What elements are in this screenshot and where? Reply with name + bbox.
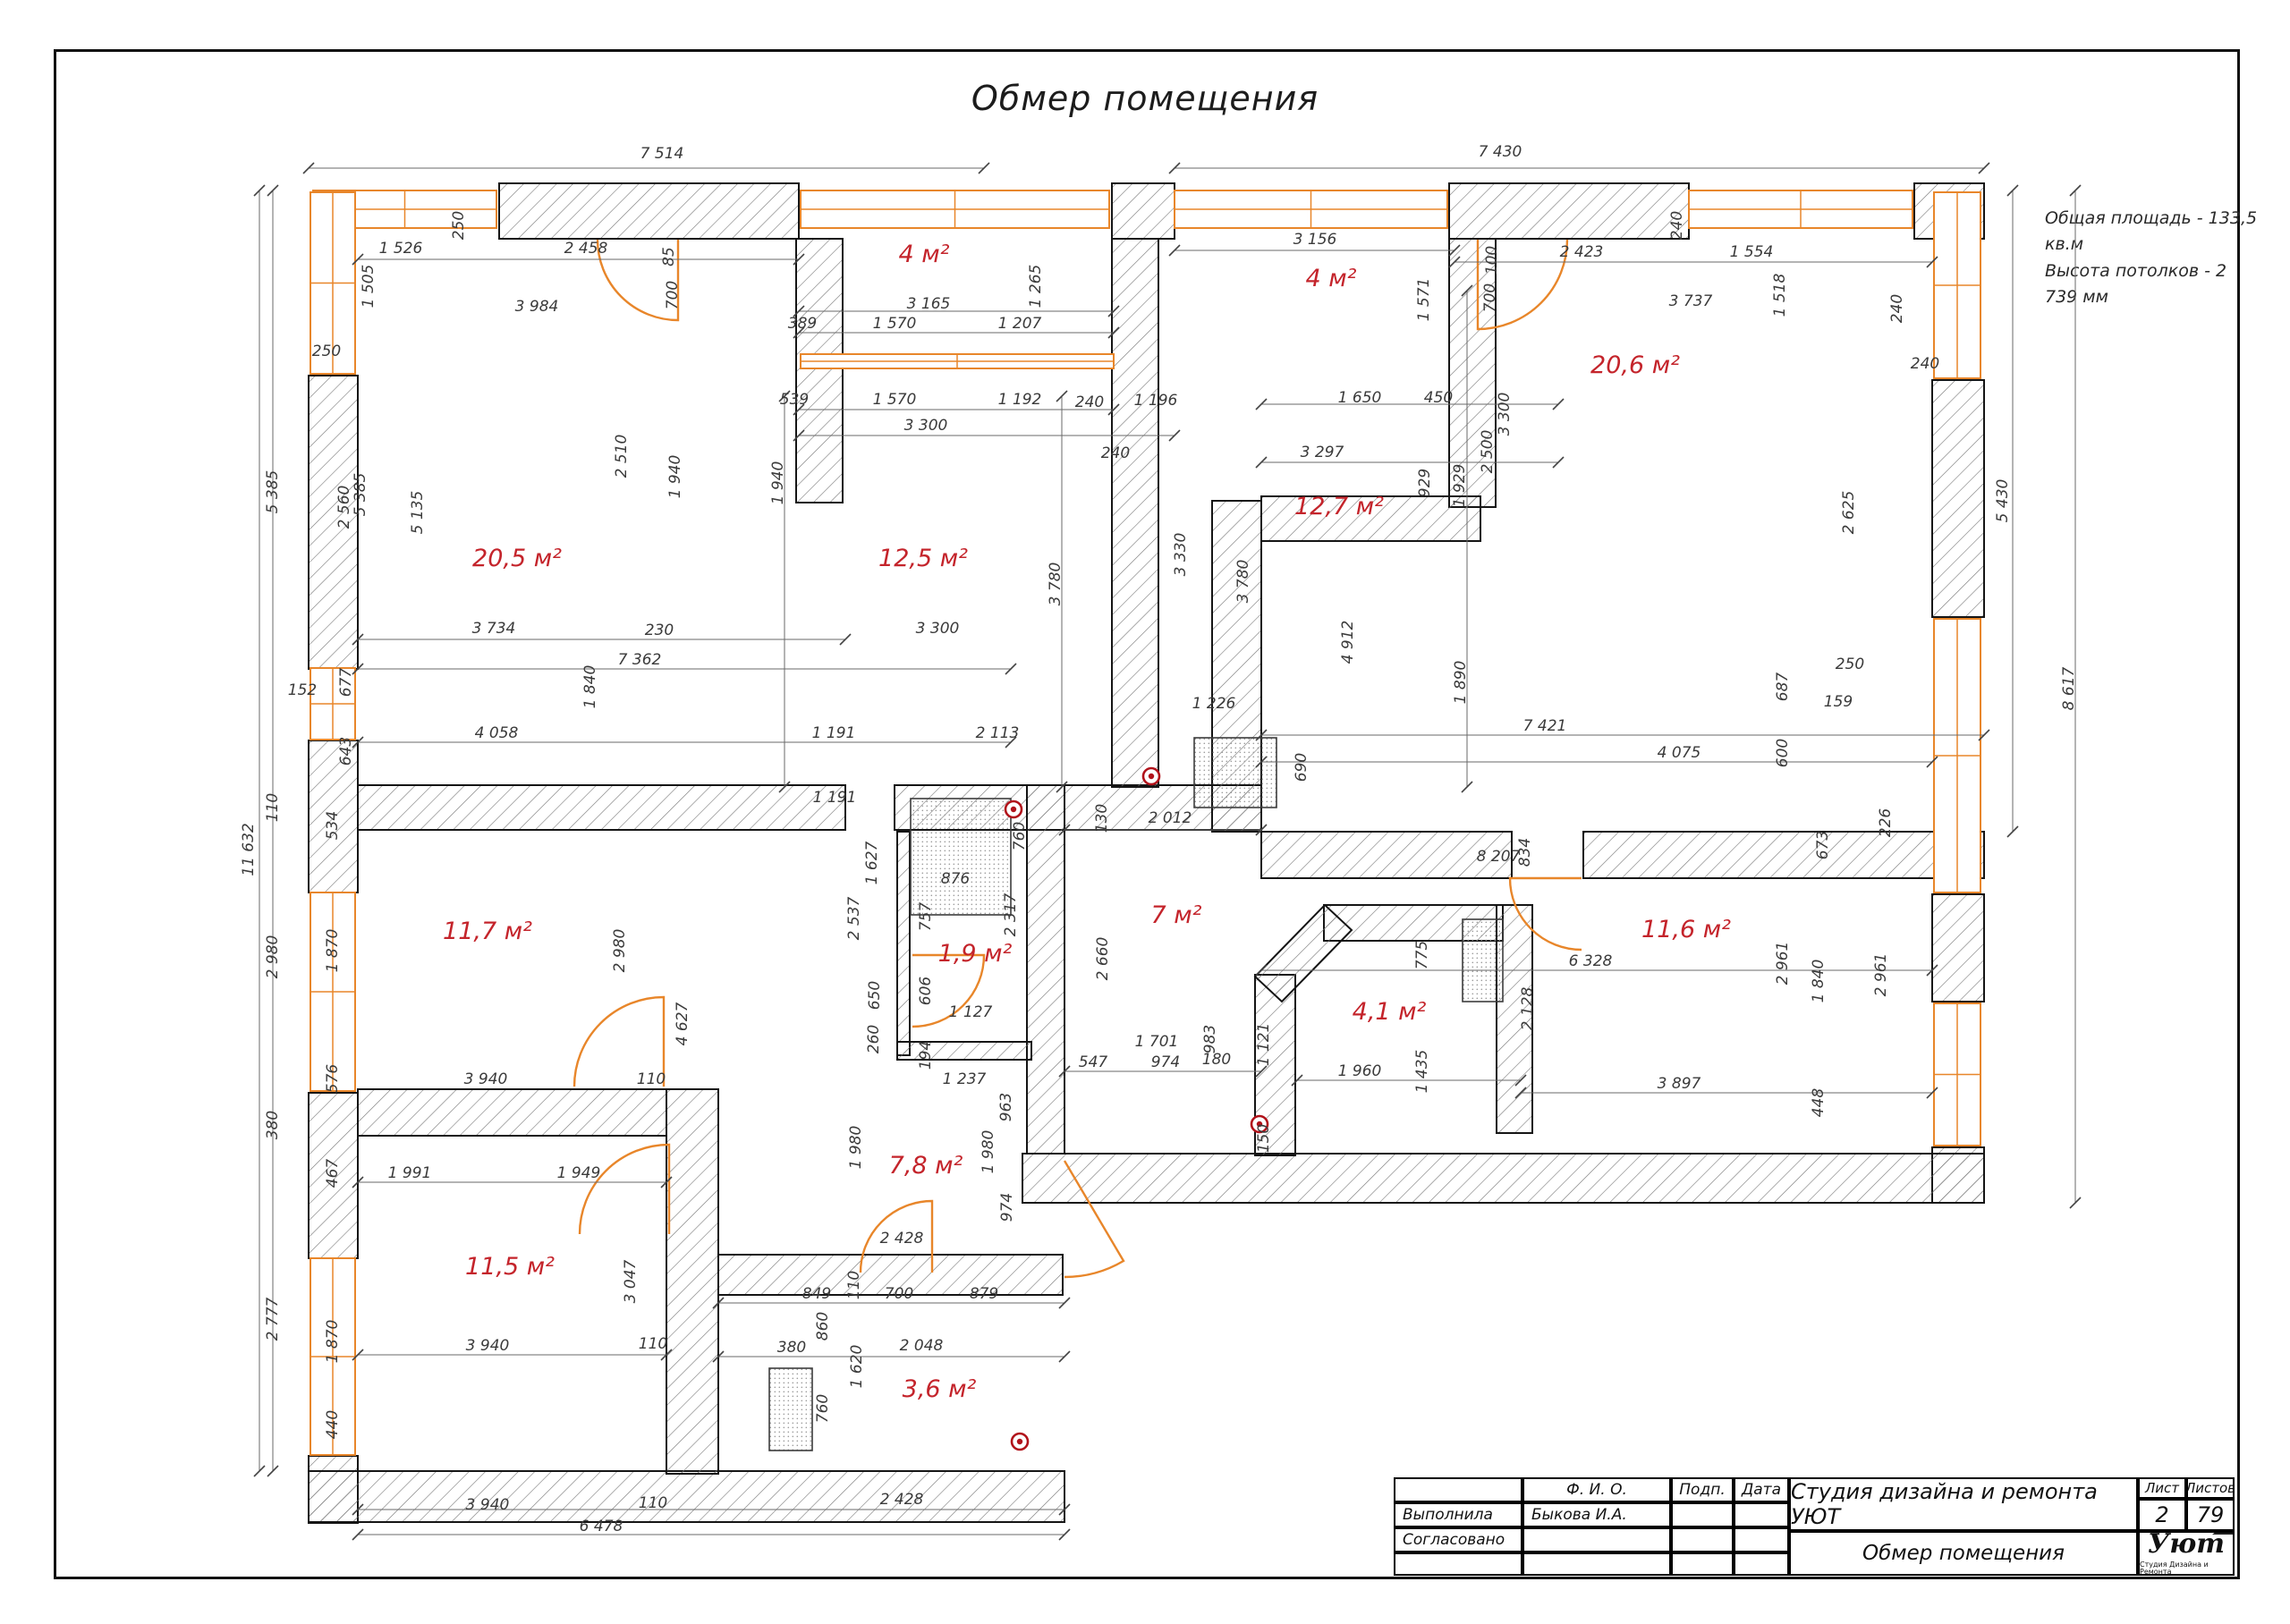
dimension-label: 1 570 (873, 315, 917, 333)
dimension-label: 467 (324, 1159, 342, 1188)
dimension-label: 1 840 (581, 665, 599, 709)
dimension-label: 547 (1079, 1053, 1108, 1071)
dimension-label: 1 207 (998, 315, 1042, 333)
dimension-label: 448 (1810, 1088, 1828, 1118)
dimension-label: 3 940 (464, 1070, 508, 1088)
room-area-label: 12,7 м² (1294, 493, 1384, 520)
dimension-label: 700 (885, 1285, 913, 1303)
dimension-label: 250 (450, 211, 468, 240)
dimension-label: 600 (1774, 739, 1792, 767)
dimension-label: 6 478 (580, 1518, 623, 1535)
dimension-label: 1 980 (980, 1130, 997, 1174)
dimension-label: 3 780 (1047, 562, 1064, 606)
dimension-label: 1 620 (848, 1345, 866, 1389)
dimension-label: 250 (312, 343, 341, 360)
dimension-label: 110 (845, 1271, 863, 1299)
dimension-label: 2 458 (564, 240, 608, 258)
dimension-label: 3 897 (1658, 1075, 1701, 1093)
dimension-label: 534 (324, 811, 342, 840)
dimension-label: 2 560 (335, 486, 353, 529)
dimension-label: 1 191 (813, 789, 857, 807)
wall-segment (1449, 183, 1689, 239)
dimension-label: 2 961 (1872, 953, 1890, 997)
titleblock-agreed-label: Согласовано (1394, 1527, 1522, 1552)
dimension-label: 2 048 (900, 1337, 944, 1355)
floor-plan: 7 5147 4305 4308 61711 6325 3851102 9803… (0, 0, 2290, 1624)
titleblock-date-header: Дата (1734, 1477, 1789, 1502)
dimension-label: 240 (1668, 211, 1686, 240)
dimension-label: 240 (1911, 355, 1939, 373)
dimension-label: 2 428 (880, 1491, 924, 1509)
dimension-label: 876 (941, 870, 971, 888)
dimension-label: 110 (639, 1335, 667, 1353)
room-area-label: 1,9 м² (938, 940, 1013, 968)
room-area-label: 4,1 м² (1353, 998, 1427, 1026)
dimension-label: 159 (1824, 693, 1853, 711)
dimension-label: 687 (1774, 672, 1792, 702)
dimension-label: 11 632 (240, 823, 258, 875)
dimension-label: 240 (1888, 294, 1906, 323)
dimension-label: 576 (324, 1064, 342, 1094)
wall-segment (309, 1471, 1064, 1522)
outlet-icon-center (1149, 774, 1154, 779)
dimension-label: 4 912 (1339, 621, 1357, 664)
walls-layer (309, 183, 1984, 1523)
titleblock-corner-cell (1394, 1477, 1522, 1502)
dimension-label: 3 984 (515, 298, 559, 316)
dimension-label: 2 510 (613, 435, 631, 478)
dimension-label: 539 (780, 391, 809, 409)
dimension-label: 7 430 (1479, 143, 1522, 161)
wall-diagonal-segment (1255, 905, 1352, 1002)
dimension-label: 7 514 (640, 145, 684, 163)
room-area-label: 4 м² (1306, 265, 1357, 292)
dimension-label: 2 537 (845, 896, 863, 940)
dimension-label: 450 (1424, 389, 1453, 407)
dimension-label: 2 980 (264, 935, 282, 979)
dimension-label: 974 (998, 1193, 1016, 1222)
fixture (1194, 738, 1276, 808)
wall-segment (1583, 832, 1984, 878)
titleblock-cell (1671, 1527, 1734, 1552)
titleblock-sign-header: Подп. (1671, 1477, 1734, 1502)
dimension-label: 3 156 (1293, 231, 1337, 249)
wall-segment (1112, 183, 1175, 239)
dimension-label: 1 435 (1413, 1050, 1431, 1094)
dimension-label: 2 428 (880, 1230, 924, 1248)
dimension-label: 1 570 (873, 391, 917, 409)
fixture (769, 1368, 812, 1451)
title-block: Выполнила Согласовано Ф. И. О. Быкова И.… (1394, 1477, 2235, 1576)
titleblock-done-label: Выполнила (1394, 1502, 1522, 1527)
wall-segment (1932, 380, 1984, 617)
room-area-label: 7,8 м² (889, 1152, 963, 1180)
titleblock-cell (1522, 1527, 1671, 1552)
dimension-label: 700 (1481, 283, 1499, 312)
dimension-label: 1 526 (379, 240, 423, 258)
titleblock-doc-title: Обмер помещения (1789, 1531, 2138, 1576)
dimension-label: 240 (1075, 393, 1104, 411)
dimension-label: 2 317 (1002, 892, 1020, 936)
wall-segment (1932, 894, 1984, 1002)
dimension-label: 760 (1011, 822, 1029, 850)
room-area-label: 12,5 м² (878, 545, 968, 572)
dimension-label: 1 554 (1730, 243, 1774, 261)
outlet-icon-center (1017, 1439, 1022, 1444)
dimension-label: 1 949 (557, 1164, 601, 1182)
room-area-label: 20,5 м² (472, 545, 562, 572)
titleblock-cell (1734, 1502, 1789, 1527)
dimension-label: 929 (1416, 469, 1434, 497)
dimension-label: 1 890 (1452, 661, 1470, 705)
dimension-label: 1 940 (666, 455, 684, 499)
dimension-label: 1 192 (998, 391, 1042, 409)
dimension-label: 2 980 (611, 929, 629, 973)
dimension-label: 860 (814, 1312, 832, 1341)
dimension-label: 250 (1836, 656, 1864, 673)
titleblock-sheet-label: Лист (2138, 1477, 2186, 1499)
dimension-label: 1 196 (1134, 392, 1178, 410)
titleblock-sheets-total: 79 (2186, 1499, 2235, 1531)
dimension-label: 1 571 (1415, 278, 1433, 322)
titleblock-cell (1734, 1552, 1789, 1576)
dimension-label: 230 (645, 622, 674, 639)
dimension-label: 1 121 (1255, 1023, 1273, 1067)
dimension-label: 5 430 (1994, 479, 2012, 523)
dimension-label: 1 627 (863, 841, 881, 884)
room-area-label: 7 м² (1151, 901, 1202, 929)
dimension-label: 2 660 (1094, 937, 1112, 981)
dimension-label: 849 (802, 1285, 831, 1303)
wall-segment (897, 832, 910, 1055)
dimension-label: 150 (1255, 1124, 1273, 1153)
dimension-label: 130 (1093, 804, 1111, 833)
dimension-label: 440 (324, 1410, 342, 1439)
titleblock-sheets-label: Листов (2186, 1477, 2235, 1499)
dimension-label: 6 328 (1569, 952, 1613, 970)
dimension-label: 963 (997, 1093, 1015, 1121)
titleblock-fio-header: Ф. И. О. (1522, 1477, 1671, 1502)
dimension-label: 1 840 (1810, 960, 1828, 1003)
dimension-label: 7 362 (618, 651, 662, 669)
dimension-label: 2 961 (1774, 942, 1792, 985)
dimension-label: 1 940 (769, 461, 787, 505)
dimension-label: 2 012 (1149, 809, 1192, 827)
dimension-label: 643 (337, 737, 355, 765)
dimension-label: 5 385 (352, 473, 369, 517)
company-logo: Уют Студия Дизайна и Ремонта (2138, 1531, 2235, 1576)
dimension-label: 260 (865, 1025, 883, 1053)
titleblock-empty-row (1394, 1552, 1522, 1576)
dimension-label: 1 980 (847, 1126, 865, 1170)
titleblock-cell (1522, 1552, 1671, 1576)
room-area-label: 11,7 м² (443, 918, 532, 945)
dimension-label: 1 991 (388, 1164, 432, 1182)
dimension-label: 110 (639, 1494, 667, 1512)
dimension-label: 4 075 (1658, 744, 1701, 762)
dimension-label: 3 330 (1172, 533, 1190, 577)
dimension-label: 1 237 (943, 1070, 987, 1088)
titleblock-sheet-number: 2 (2138, 1499, 2186, 1531)
dimension-label: 3 940 (466, 1337, 510, 1355)
wall-segment (796, 239, 843, 503)
dimension-label: 3 734 (472, 620, 516, 638)
dimension-label: 1 265 (1027, 265, 1045, 309)
dimension-label: 1 226 (1192, 695, 1236, 713)
dimension-label: 1 870 (324, 1320, 342, 1364)
dimension-label: 3 300 (904, 417, 948, 435)
dimension-label: 760 (814, 1394, 832, 1423)
dimension-label: 194 (917, 1041, 935, 1070)
room-area-label: 11,6 м² (1641, 916, 1731, 943)
dimension-label: 3 300 (916, 620, 960, 638)
dimension-label: 7 421 (1523, 717, 1567, 735)
dimension-label: 1 650 (1338, 389, 1382, 407)
dimension-label: 5 385 (264, 470, 282, 514)
wall-segment (1022, 1154, 1984, 1203)
dimension-label: 1 518 (1771, 273, 1789, 317)
dimension-label: 3 737 (1669, 292, 1713, 310)
dimension-label: 757 (917, 902, 935, 932)
dimension-label: 380 (777, 1339, 806, 1357)
dimension-label: 3 940 (466, 1496, 510, 1514)
dimension-label: 673 (1814, 831, 1832, 859)
dimension-label: 1 870 (324, 929, 342, 973)
dimension-label: 3 047 (622, 1259, 640, 1303)
dimension-label: 4 058 (475, 724, 519, 742)
logo-roof-icon (2212, 1531, 2235, 1535)
room-area-label: 4 м² (899, 241, 950, 268)
dimension-label: 152 (288, 681, 317, 699)
dimension-label: 2 128 (1519, 986, 1537, 1030)
dimension-label: 3 165 (907, 295, 951, 313)
dimension-label: 1 191 (812, 724, 856, 742)
dimension-label: 226 (1877, 808, 1895, 838)
room-area-label: 11,5 м² (465, 1253, 555, 1281)
titleblock-cell (1671, 1552, 1734, 1576)
dimension-label: 2 423 (1560, 243, 1604, 261)
dimension-label: 110 (264, 793, 282, 822)
dimension-label: 1 960 (1338, 1062, 1382, 1080)
logo-text: Уют (2148, 1531, 2225, 1558)
outlet-icon-center (1011, 807, 1016, 812)
dimension-label: 775 (1413, 941, 1431, 969)
dimension-label: 677 (337, 668, 355, 698)
drawing-sheet: Обмер помещения Общая площадь - 133,5 кв… (0, 0, 2290, 1624)
titleblock-cell (1734, 1527, 1789, 1552)
dimension-label: 3 297 (1301, 444, 1344, 461)
dimension-label: 1 127 (949, 1003, 993, 1021)
dimension-label: 85 (660, 247, 678, 266)
wall-segment (358, 1089, 666, 1136)
wall-segment (666, 1089, 718, 1474)
fixture (911, 799, 1011, 915)
dimension-label: 4 627 (674, 1002, 691, 1045)
dimension-label: 690 (1293, 753, 1310, 782)
dimension-label: 8 617 (2060, 666, 2078, 710)
dimension-label: 1 505 (360, 265, 377, 309)
wall-segment (358, 785, 845, 830)
logo-subtitle: Студия Дизайна и Ремонта (2140, 1561, 2233, 1576)
room-area-label: 3,6 м² (903, 1375, 977, 1403)
dimension-label: 110 (637, 1070, 666, 1088)
titleblock-author-name: Быкова И.А. (1522, 1502, 1671, 1527)
dimension-label: 879 (970, 1285, 998, 1303)
dimension-label: 700 (664, 281, 682, 309)
dimension-label: 2 625 (1840, 491, 1858, 535)
dimension-label: 3 300 (1496, 393, 1514, 436)
dimension-label: 180 (1202, 1051, 1231, 1069)
room-area-label: 20,6 м² (1590, 351, 1680, 379)
dimension-label: 2 113 (976, 724, 1020, 742)
dimension-label: 5 135 (409, 491, 427, 535)
dimension-label: 2 777 (264, 1297, 282, 1341)
dimension-label: 3 780 (1234, 560, 1252, 604)
dimension-label: 100 (1483, 246, 1501, 275)
dimension-label: 380 (264, 1111, 282, 1139)
wall-segment (499, 183, 799, 239)
dimension-label: 650 (866, 981, 884, 1010)
dimension-label: 8 207 (1477, 848, 1521, 866)
titleblock-company: Студия дизайна и ремонта УЮТ (1789, 1477, 2138, 1531)
dimension-label: 2 500 (1479, 430, 1497, 474)
dimension-label: 1 929 (1451, 464, 1469, 508)
wall-segment (1112, 239, 1158, 787)
dimension-label: 240 (1101, 444, 1130, 462)
dimension-label: 983 (1201, 1025, 1219, 1053)
dimension-label: 389 (788, 315, 817, 333)
door-swing (580, 1145, 669, 1234)
fixture (1463, 919, 1503, 1002)
dimension-label: 974 (1151, 1053, 1180, 1071)
wall-segment (1261, 832, 1512, 878)
dimension-label: 1 701 (1135, 1033, 1179, 1051)
titleblock-cell (1671, 1502, 1734, 1527)
dimension-label: 606 (917, 977, 935, 1006)
wall-segment (1027, 785, 1064, 1154)
